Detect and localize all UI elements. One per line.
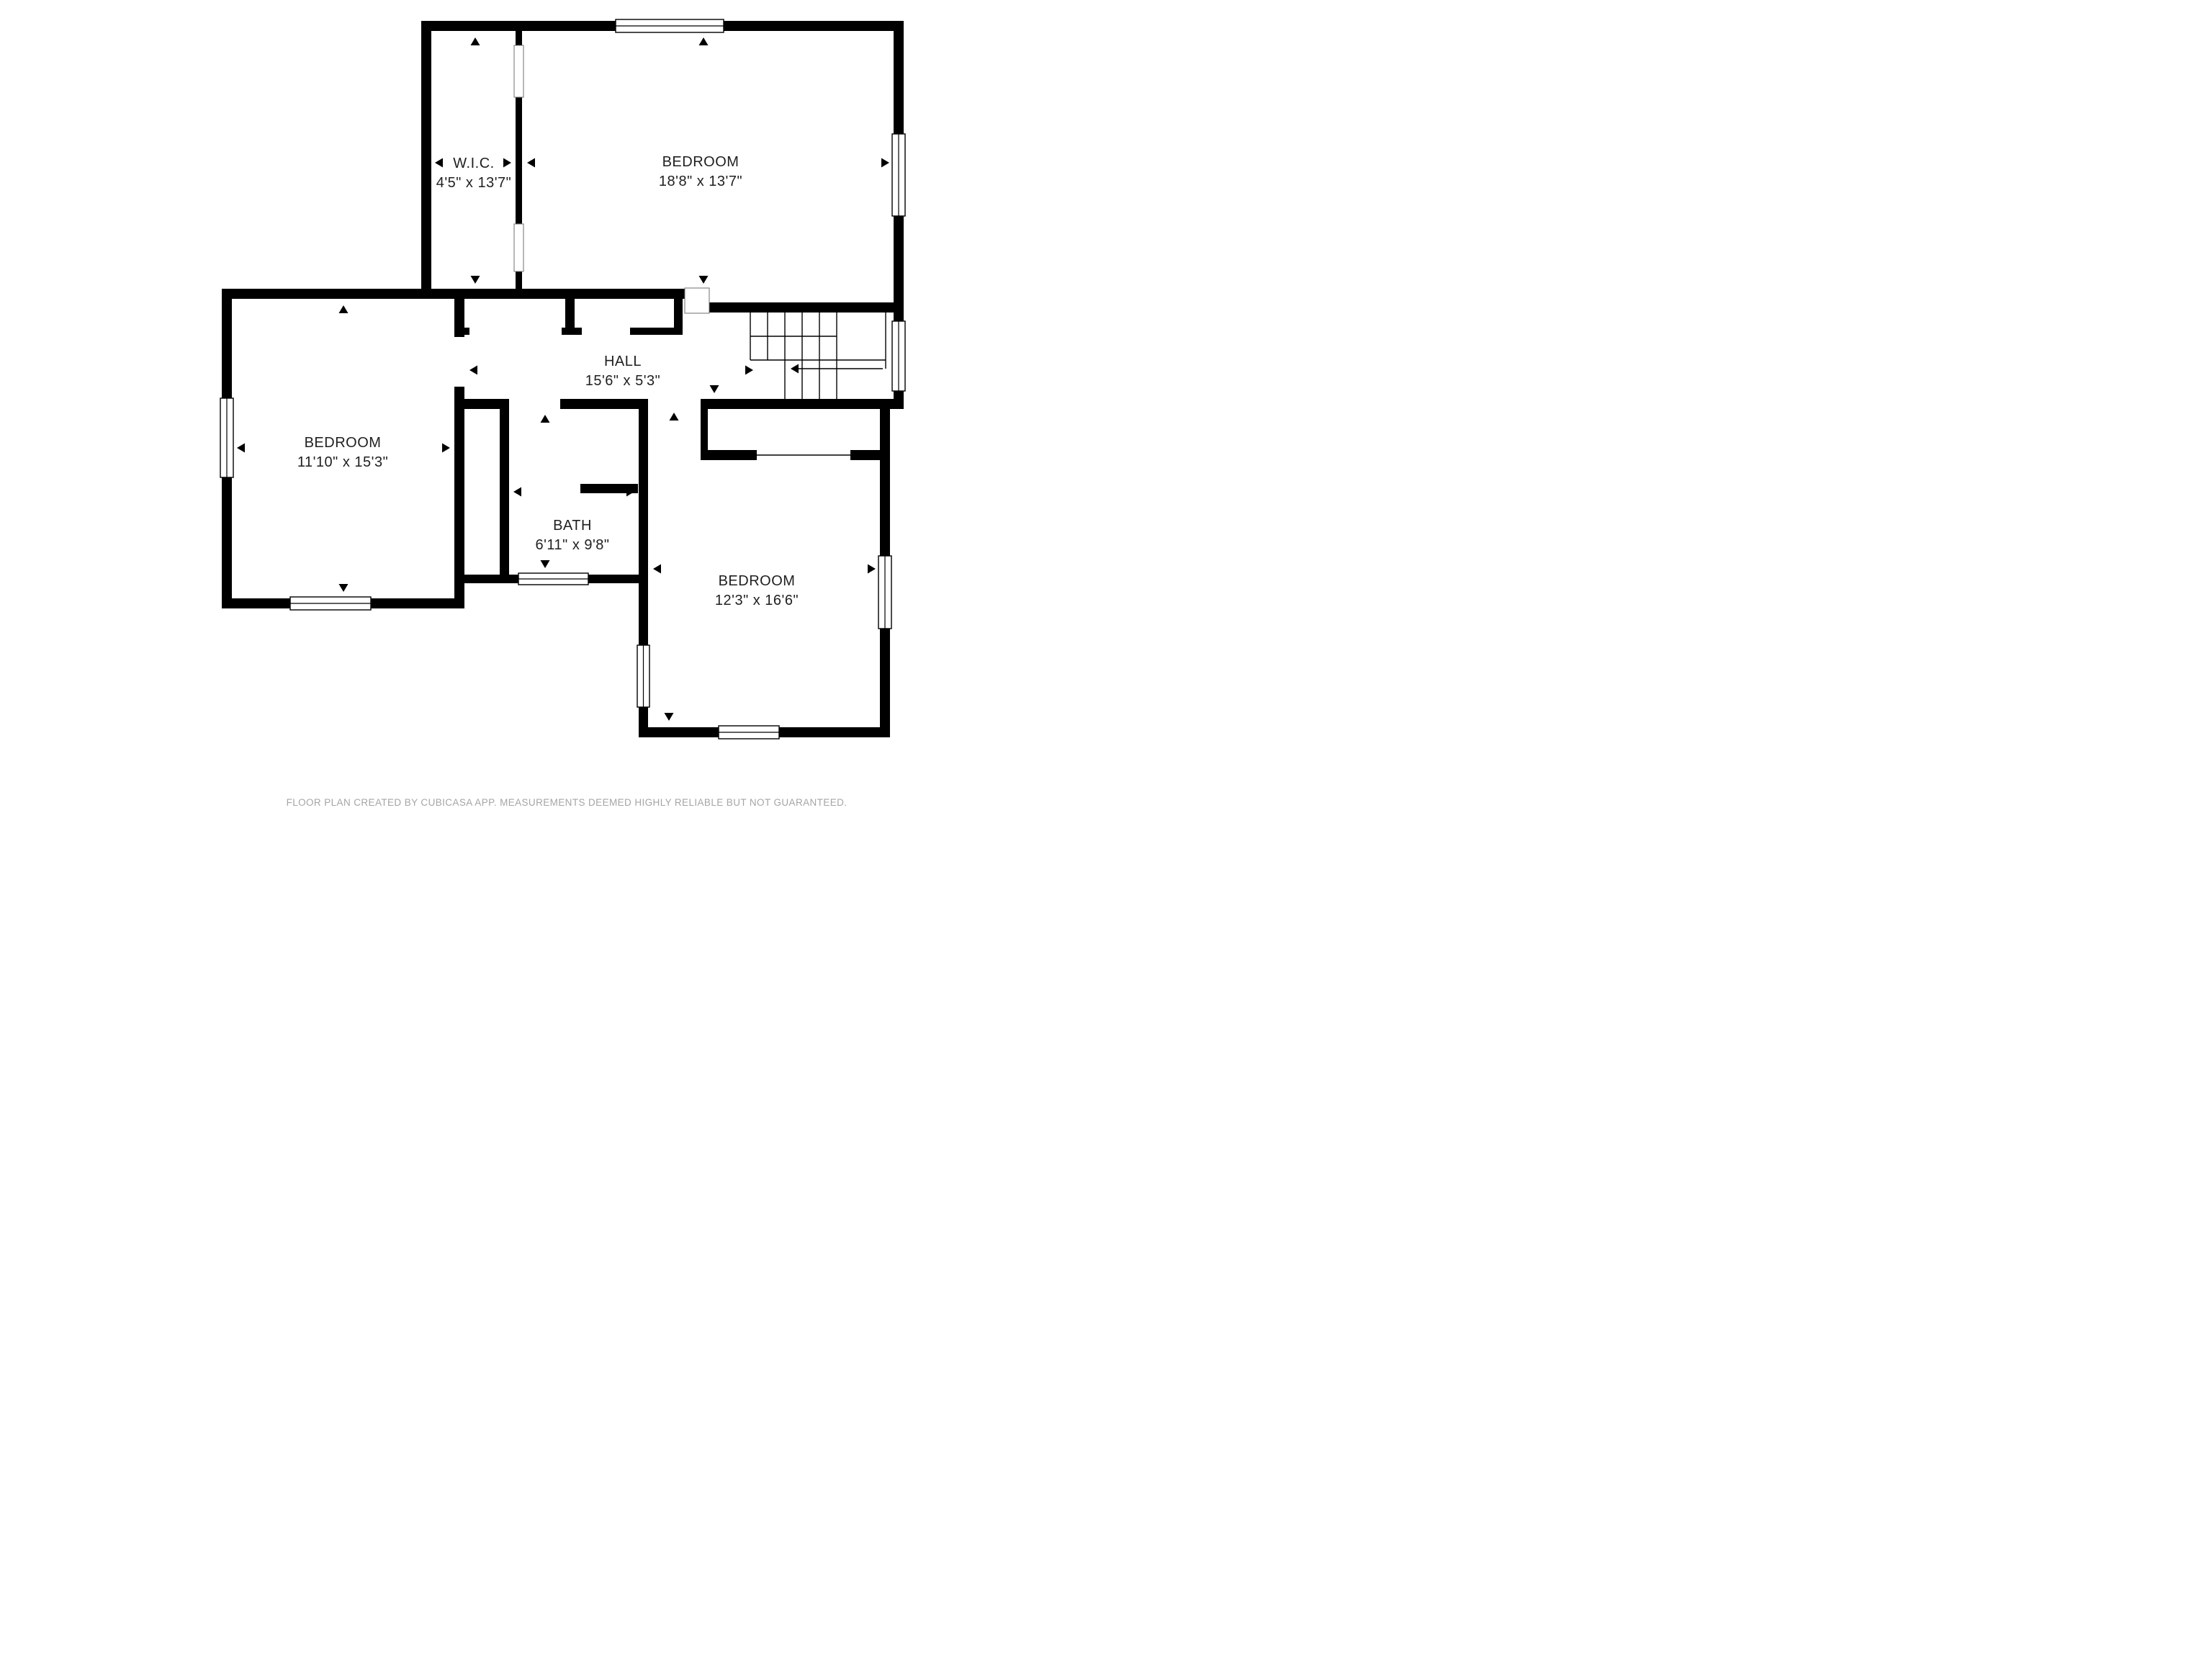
room-dimensions: 4'5" x 13'7" [436,174,512,193]
room-dimensions: 15'6" x 5'3" [585,372,661,391]
room-dimensions: 11'10" x 15'3" [297,453,388,472]
wall-wic-divider-a [516,31,522,45]
room-name: BEDROOM [715,572,799,591]
dim-arrow-bedR-down [665,713,674,721]
wall-wic-divider-c [516,271,522,289]
dim-arrow-bedL-right [442,444,450,453]
room-name: BATH [535,516,609,536]
dim-arrow-bedR-up [670,413,679,421]
room-name: BEDROOM [659,153,742,172]
dim-arrow-bedR-right [868,565,876,574]
wall-closetA-foot [454,328,469,335]
dim-arrow-bedT-left [527,158,535,168]
dim-arrow-bath-down [541,560,550,568]
room-label-bath: BATH 6'11" x 9'8" [535,516,609,555]
wall-closetB-right [674,299,683,335]
wall-hall-south-b [560,399,648,409]
dim-arrow-hall-left [469,366,477,375]
dim-arrow-bedT-up [699,37,709,45]
room-name: W.I.C. [436,154,512,174]
wall-closetAB-divider [565,299,575,335]
wall-main-horizontal [222,289,687,299]
footer-disclaimer: FLOOR PLAN CREATED BY CUBICASA APP. MEAS… [287,797,848,808]
opening-wic-upper [514,45,523,97]
dim-arrow-hall-down [710,385,719,393]
wall-upper-left [421,21,431,299]
opening-wic-lower [514,224,523,271]
room-name: BEDROOM [297,433,388,453]
dim-arrow-bath-up [541,415,550,423]
wall-wic-divider-b [516,97,522,224]
dim-arrow-wic-up [471,37,480,45]
dim-arrow-bedL-down [339,584,349,592]
room-label-wic: W.I.C. 4'5" x 13'7" [436,154,512,193]
dim-arrow-wic-down [471,276,480,284]
opening-hall-stairs [685,288,709,313]
wall-closetR-bottom-a [701,450,757,460]
dim-arrow-bedT-right [881,158,889,168]
wall-hall-south-a [454,399,509,409]
room-dimensions: 6'11" x 9'8" [535,536,609,555]
dim-arrow-bedL-up [339,305,349,313]
floor-plan-drawing [0,0,1106,829]
room-label-bedroom-top: BEDROOM 18'8" x 13'7" [659,153,742,192]
stair-direction-arrowhead [791,364,799,374]
room-label-bedroom-left: BEDROOM 11'10" x 15'3" [297,433,388,472]
room-label-hall: HALL 15'6" x 5'3" [585,352,661,391]
wall-hall-south-c [701,399,904,409]
room-dimensions: 18'8" x 13'7" [659,172,742,192]
floor-plan-canvas: W.I.C. 4'5" x 13'7" BEDROOM 18'8" x 13'7… [0,0,1106,829]
dim-arrow-bedR-left [653,565,661,574]
dim-arrow-bedT-down [699,276,709,284]
wall-stairs-top [709,302,894,313]
room-dimensions: 12'3" x 16'6" [715,591,799,611]
room-label-bedroom-right: BEDROOM 12'3" x 16'6" [715,572,799,611]
wall-leftroom-right-b [454,387,464,608]
room-name: HALL [585,352,661,372]
dim-arrow-bath-left [513,487,521,497]
dim-arrow-bedL-left [237,444,245,453]
dim-arrow-hall-right [745,366,753,375]
wall-bath-west [500,409,509,583]
